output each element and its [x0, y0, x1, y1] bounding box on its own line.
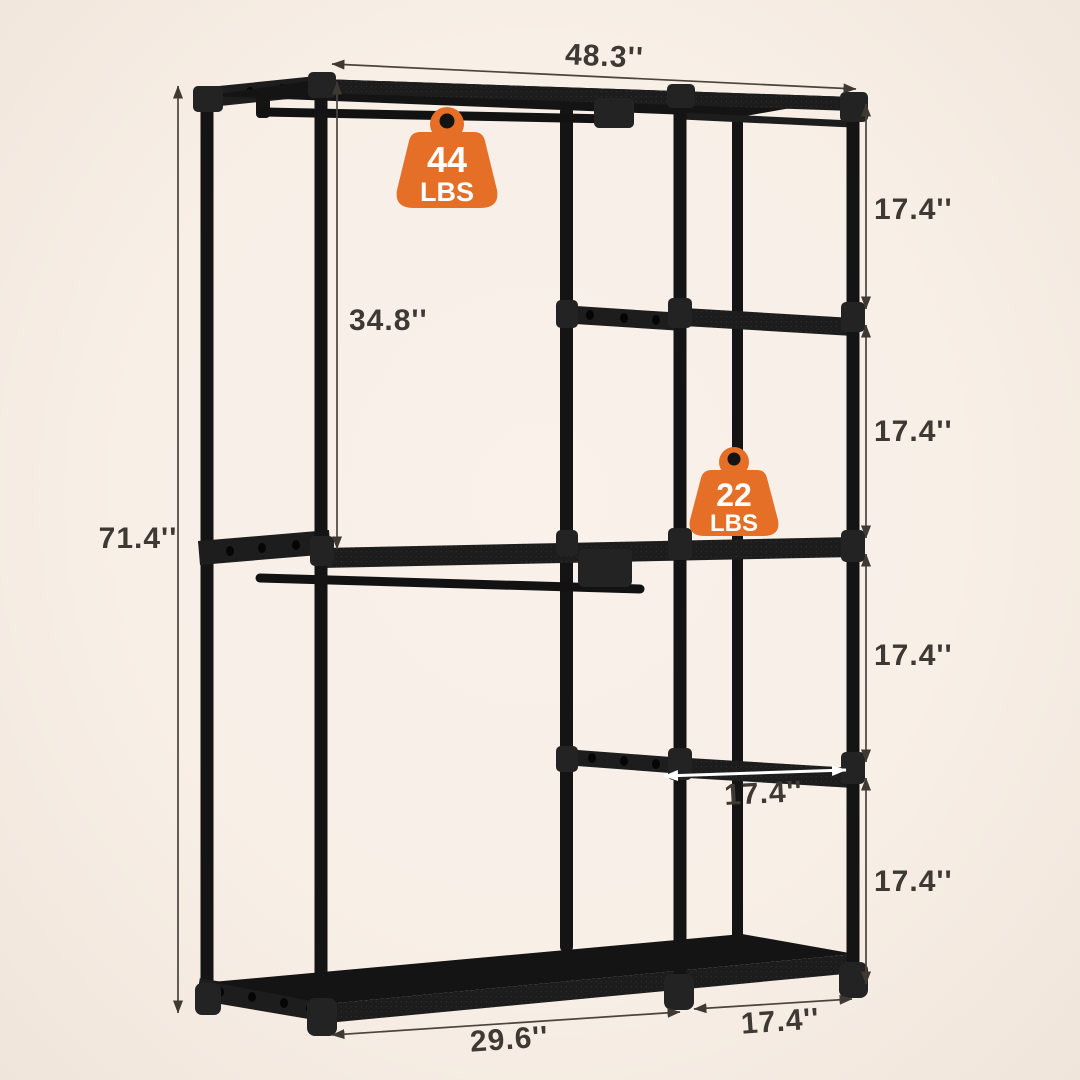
dim-label-bottom-right: 17.4'': [740, 1002, 821, 1040]
dim-label-total-width: 48.3'': [564, 38, 644, 75]
dim-label-hanging-height: 34.8'': [349, 304, 428, 337]
dim-label-tier3: 17.4'': [874, 639, 953, 672]
middle-rod-right-bracket: [578, 549, 632, 587]
badge-top-rod-value: 44: [427, 139, 467, 180]
top-front-rail: [682, 116, 852, 124]
weight-badge-top-rod: 44 LBS: [397, 107, 498, 208]
garment-rack-illustration: [193, 72, 868, 1036]
weight-badge-middle-rod: 22 LBS: [690, 447, 779, 537]
top-rod-right-bracket: [594, 98, 634, 128]
badge-middle-rod-unit: LBS: [710, 510, 758, 537]
dim-label-bottom-left: 29.6'': [469, 1020, 550, 1058]
dim-label-tier4: 17.4'': [874, 865, 953, 898]
dim-label-shelf-depth: 17.4'': [723, 775, 803, 812]
joint-connectors: [193, 72, 868, 784]
badge-middle-rod-value: 22: [716, 477, 752, 513]
product-dimension-diagram: 44 LBS 22 LBS 48.3'' 71.4'' 34.8'' 17.4'…: [0, 0, 1080, 1080]
diagram-stage: 44 LBS 22 LBS 48.3'' 71.4'' 34.8'' 17.4'…: [0, 0, 1080, 1080]
dim-label-tier1: 17.4'': [874, 193, 953, 226]
back-middle-post: [560, 106, 573, 952]
badge-top-rod-unit: LBS: [420, 177, 474, 207]
dim-label-total-height: 71.4'': [99, 522, 178, 555]
dim-label-tier2: 17.4'': [874, 415, 953, 448]
